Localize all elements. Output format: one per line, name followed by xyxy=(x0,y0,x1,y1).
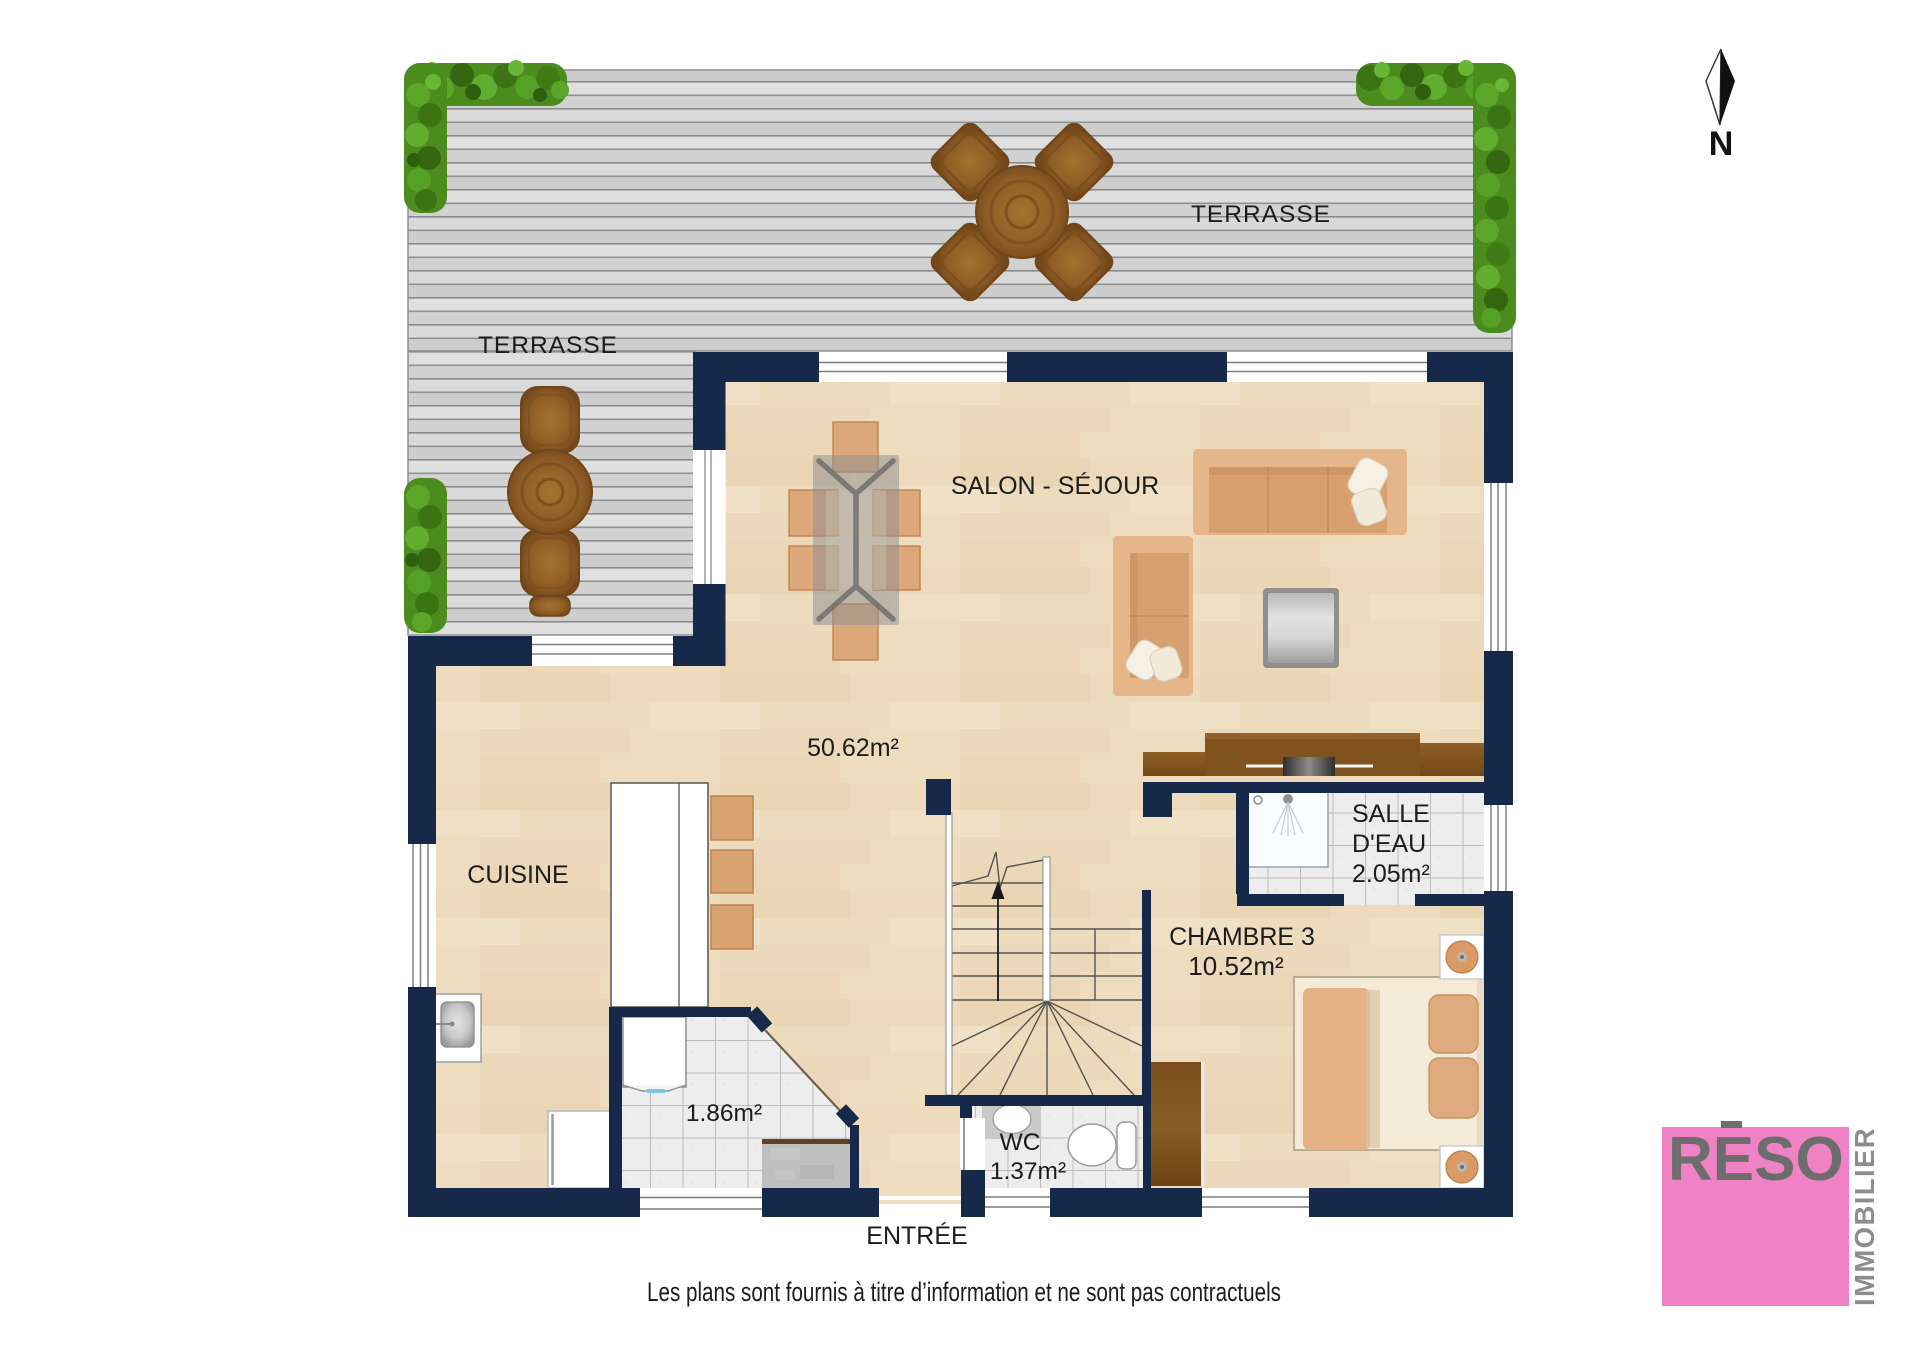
svg-text:1.37m²: 1.37m² xyxy=(990,1158,1066,1185)
svg-text:D'EAU: D'EAU xyxy=(1352,830,1426,858)
svg-text:Les plans sont fournis à titre: Les plans sont fournis à titre d’informa… xyxy=(647,1277,1281,1307)
svg-text:2.05m²: 2.05m² xyxy=(1352,860,1430,888)
svg-text:IMMOBILIER: IMMOBILIER xyxy=(1849,1127,1880,1306)
svg-text:N: N xyxy=(1709,125,1734,163)
svg-text:CUISINE: CUISINE xyxy=(467,861,568,889)
svg-text:CHAMBRE 3: CHAMBRE 3 xyxy=(1169,923,1315,951)
svg-text:TERRASSE: TERRASSE xyxy=(1191,201,1331,228)
svg-text:WC: WC xyxy=(1000,1129,1041,1156)
svg-text:RESO: RESO xyxy=(1668,1125,1844,1194)
svg-text:SALON - SÉJOUR: SALON - SÉJOUR xyxy=(951,471,1159,500)
svg-text:1.86m²: 1.86m² xyxy=(686,1100,762,1127)
svg-text:SALLE: SALLE xyxy=(1352,800,1430,828)
svg-text:ENTRÉE: ENTRÉE xyxy=(866,1221,967,1250)
svg-text:50.62m²: 50.62m² xyxy=(807,734,899,762)
svg-text:TERRASSE: TERRASSE xyxy=(478,332,618,359)
svg-text:10.52m²: 10.52m² xyxy=(1188,951,1284,981)
